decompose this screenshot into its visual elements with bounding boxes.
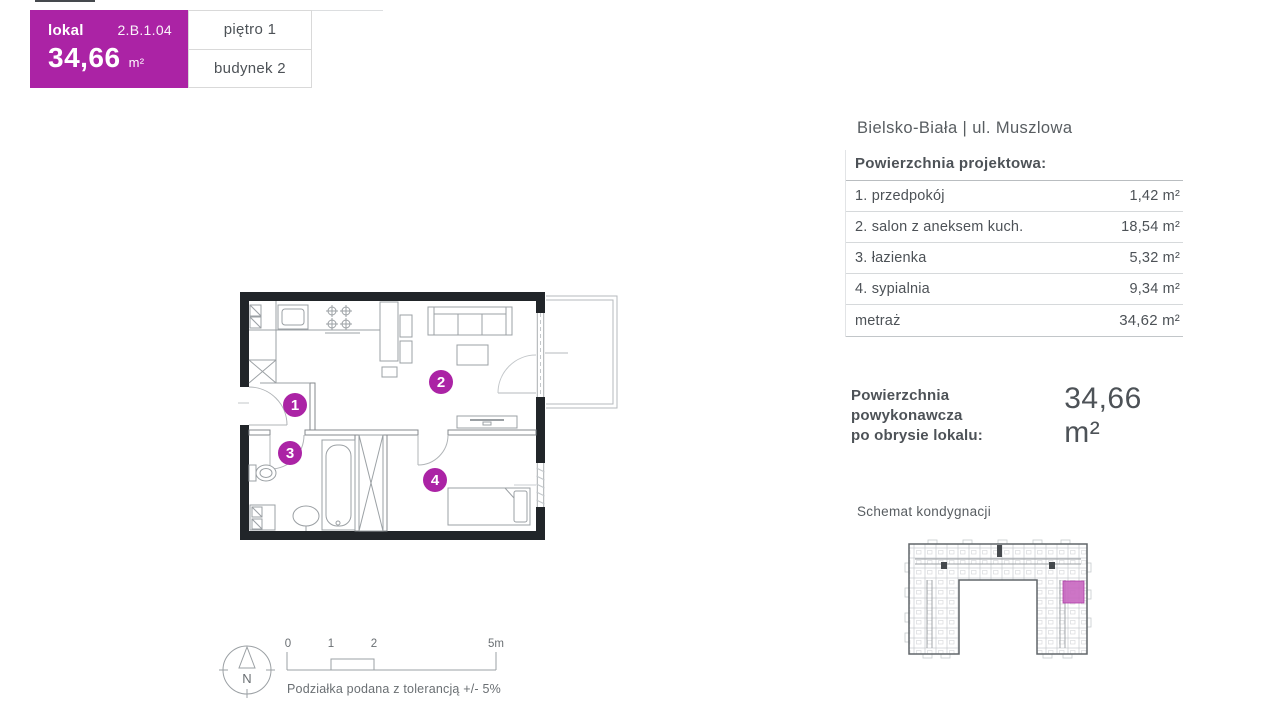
washbasin [293,506,319,531]
bathtub [322,440,355,530]
unit-number: 2.B.1.04 [117,22,172,38]
building-box: budynek 2 [189,49,311,88]
room-marker-1-label: 1 [291,397,299,414]
row-label: 4. sypialnia [855,281,930,297]
table-row: 1. przedpokój 1,42 m² [846,181,1183,212]
floor-schematic [903,538,1093,662]
balcony [545,296,617,408]
row-value: 9,34 m² [1129,281,1180,297]
sofa [428,307,512,335]
row-label: 2. salon z aneksem kuch. [855,219,1023,235]
lokal-label: lokal [48,22,84,39]
wardrobe [359,435,383,531]
room-marker-2-label: 2 [437,374,445,391]
area-table-header: Powierzchnia projektowa: [846,150,1183,181]
scale-tick-label: 0 [285,638,291,650]
area-table: Powierzchnia projektowa: 1. przedpokój 1… [845,150,1183,337]
unit-area: 34,66 [48,42,121,74]
floor-plan: 1 2 3 4 [230,283,620,548]
compass: N [218,641,276,699]
unit-area-unit: m² [129,55,145,70]
chair [400,341,412,363]
as-built-label: Powierzchnia powykonawcza po obrysie lok… [845,386,1064,446]
row-value: 5,32 m² [1129,250,1180,266]
toilet [249,465,276,481]
as-built-section: Powierzchnia powykonawcza po obrysie lok… [845,382,1186,450]
dining-table [380,302,398,361]
schematic-title: Schemat kondygnacji [857,504,991,519]
north-arrow-icon [239,647,255,668]
chair [400,315,412,337]
page: lokal 2.B.1.04 34,66 m² piętro 1 budynek… [0,0,1280,726]
scale-tick-label: 5m [488,638,504,650]
room-marker-4-label: 4 [431,472,440,489]
table-row: 4. sypialnia 9,34 m² [846,274,1183,305]
crop-mark [35,0,95,2]
pillow [514,491,527,522]
chair [382,367,397,377]
total-label: metraż [855,313,901,329]
row-value: 18,54 m² [1121,219,1180,235]
floor-box: piętro 1 [189,11,311,49]
total-value: 34,62 m² [1119,312,1180,329]
compass-north-label: N [242,671,251,686]
table-total-row: metraż 34,62 m² [846,305,1183,337]
row-label: 3. łazienka [855,250,927,266]
bed [448,488,530,525]
table-row: 2. salon z aneksem kuch. 18,54 m² [846,212,1183,243]
table-row: 3. łazienka 5,32 m² [846,243,1183,274]
coffee-table [457,345,488,365]
highlighted-unit [1063,581,1084,603]
tv-cabinet [457,416,517,428]
scale-tick-label: 2 [371,638,377,650]
washing-machine [250,505,275,530]
room-marker-3-label: 3 [286,445,294,462]
row-label: 1. przedpokój [855,188,945,204]
scale-tick-label: 1 [328,638,334,650]
building-outline [905,540,1091,658]
scale-bar: 0 1 2 5m [284,636,512,676]
stove [325,305,360,333]
as-built-value: 34,66 m² [1064,382,1186,450]
unit-meta-boxes: piętro 1 budynek 2 [188,10,312,88]
tolerance-note: Podziałka podana z tolerancją +/- 5% [287,682,501,696]
row-value: 1,42 m² [1129,188,1180,204]
location-title: Bielsko-Biała | ul. Muszlowa [857,119,1072,138]
crop-mark-light [312,10,383,11]
unit-badge: lokal 2.B.1.04 34,66 m² [30,10,188,88]
